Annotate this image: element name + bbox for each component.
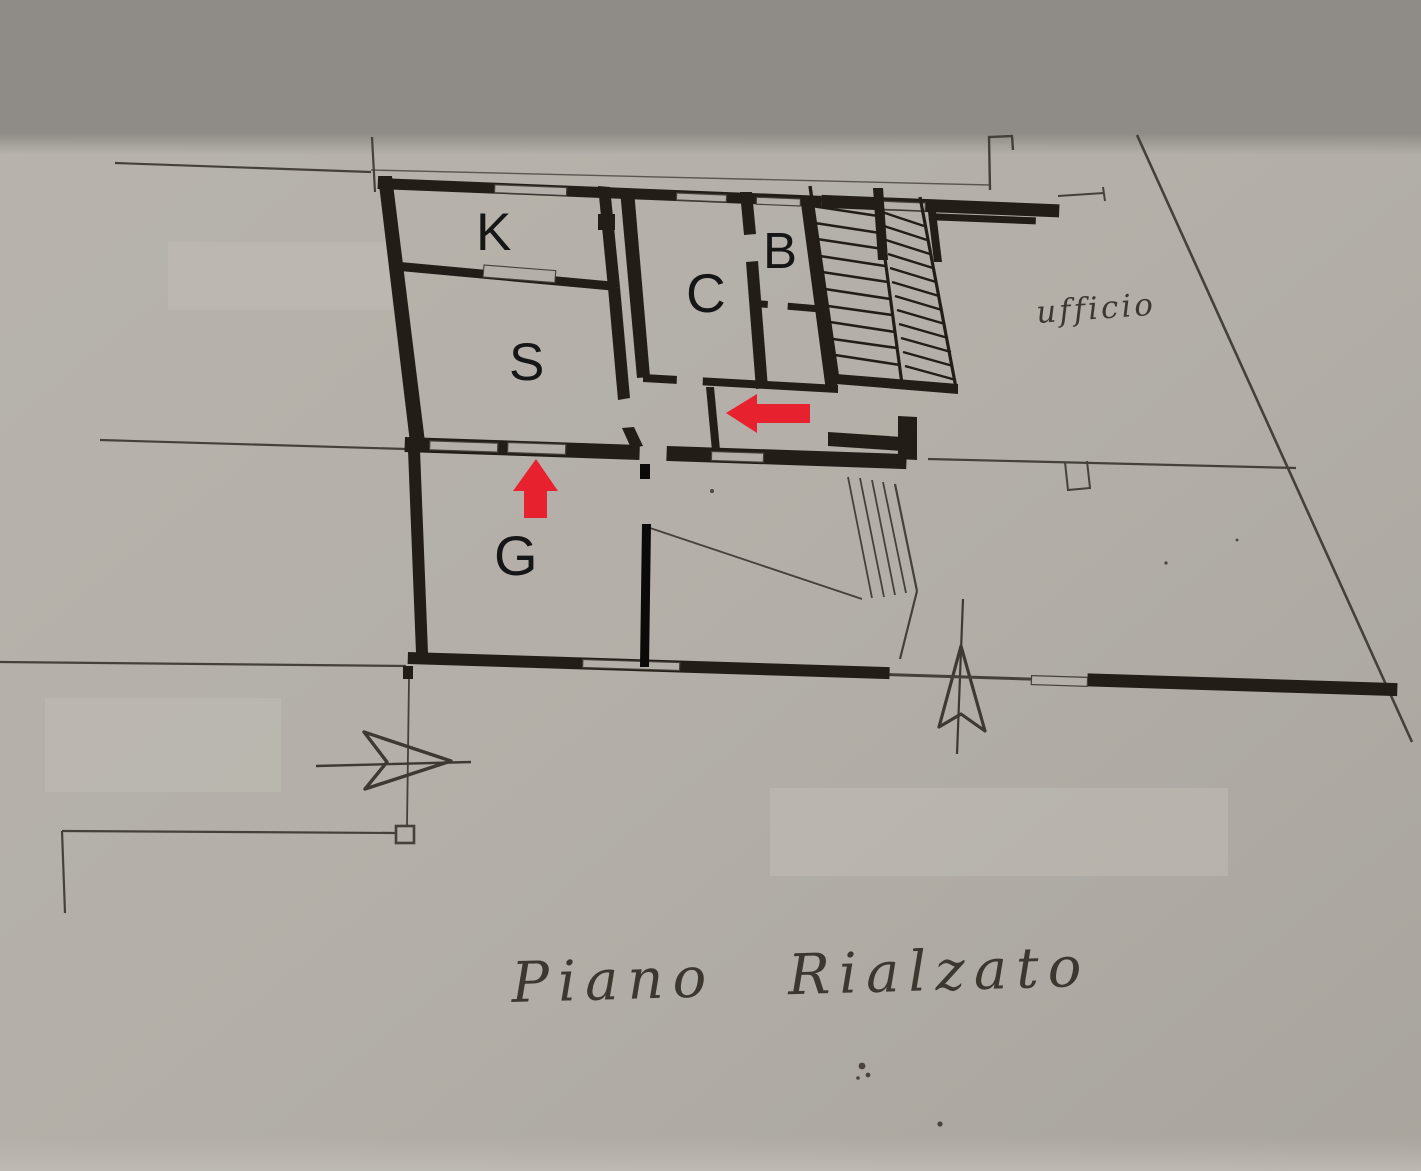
room-label-c: C [686, 262, 726, 324]
photo-shadow-top-band [0, 0, 1421, 133]
room-label-b: B [763, 222, 797, 279]
entrance-door-gap [639, 443, 667, 463]
wall-notch [598, 214, 615, 230]
room-label-g: G [494, 524, 538, 587]
floor-plan-photo: K S C B G ufficio Piano Rialzato [0, 0, 1421, 1171]
wall-landing-v [898, 416, 917, 460]
photo-shadow-fade [0, 133, 1421, 155]
entrance-door-leaf [640, 464, 650, 479]
room-label-s: S [509, 333, 544, 392]
wall-corner-tick [403, 666, 413, 679]
floor-plan-svg: K S C B G ufficio Piano Rialzato [0, 0, 1421, 1171]
photo-light-bottom [0, 1136, 1421, 1171]
room-label-k: K [476, 203, 511, 262]
